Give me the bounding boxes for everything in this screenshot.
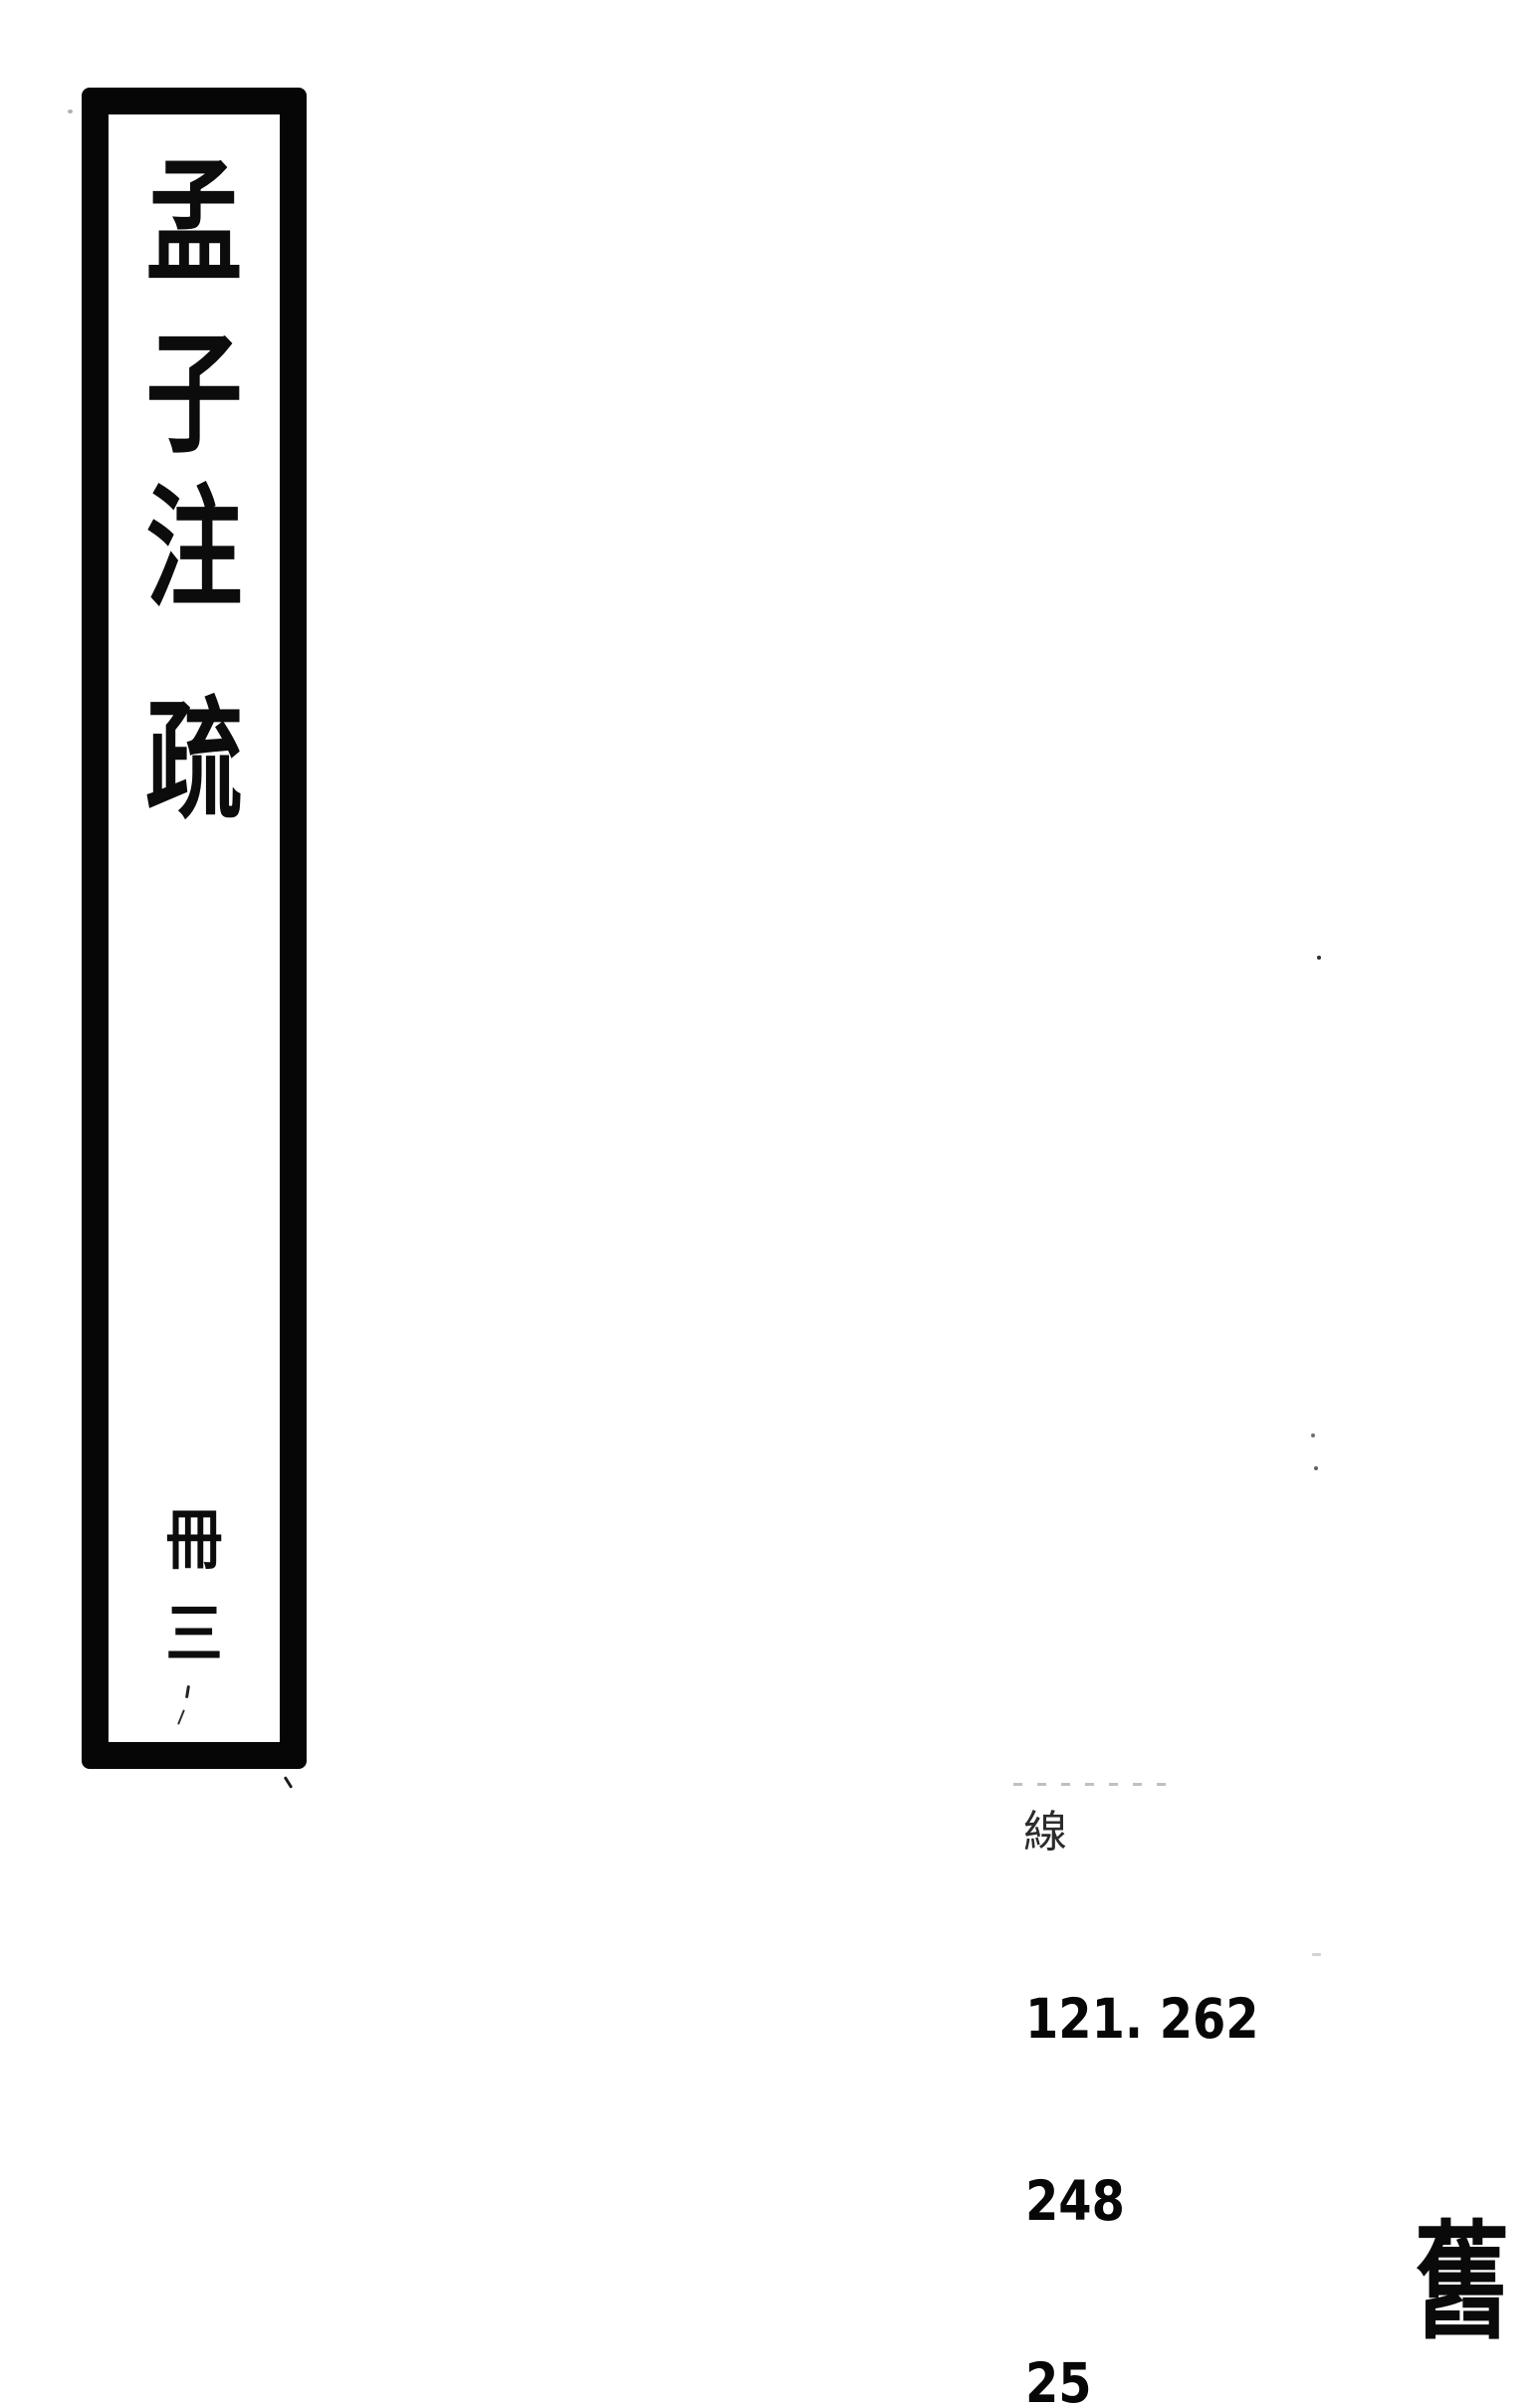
volume-char-san: 三 xyxy=(165,1602,222,1666)
title-char-zhu: 注 xyxy=(146,483,243,614)
call-number-line-cutter: 248 xyxy=(1025,2171,1259,2232)
call-number-script-char: 線 xyxy=(1023,1810,1067,1856)
volume-char-ce: 冊 xyxy=(165,1508,222,1573)
scanned-book-cover: 孟 子 注 疏 冊 三 線 121. 262 248 25 v. 3 舊 xyxy=(0,0,1540,2408)
title-char-shu: 疏 xyxy=(146,695,243,826)
title-char-meng: 孟 xyxy=(146,157,243,289)
scan-speck xyxy=(1317,956,1321,960)
ink-speck xyxy=(185,1685,190,1698)
old-collection-stamp-char: 舊 xyxy=(1415,2218,1509,2345)
spine-title-box: 孟 子 注 疏 冊 三 xyxy=(82,88,307,1769)
ink-speck xyxy=(177,1709,185,1725)
scan-speck xyxy=(1314,1466,1318,1470)
scan-speck xyxy=(68,109,73,113)
faint-dashed-line xyxy=(1013,1783,1176,1786)
title-char-zi: 子 xyxy=(146,328,243,460)
call-number-line-item: 25 xyxy=(1025,2353,1259,2408)
scan-speck xyxy=(1312,1953,1321,1956)
call-number-block: 121. 262 248 25 v. 3 xyxy=(1025,1867,1259,2408)
scan-speck xyxy=(1311,1433,1315,1437)
ink-tick-mark xyxy=(284,1776,293,1789)
call-number-line-class: 121. 262 xyxy=(1025,1989,1259,2050)
